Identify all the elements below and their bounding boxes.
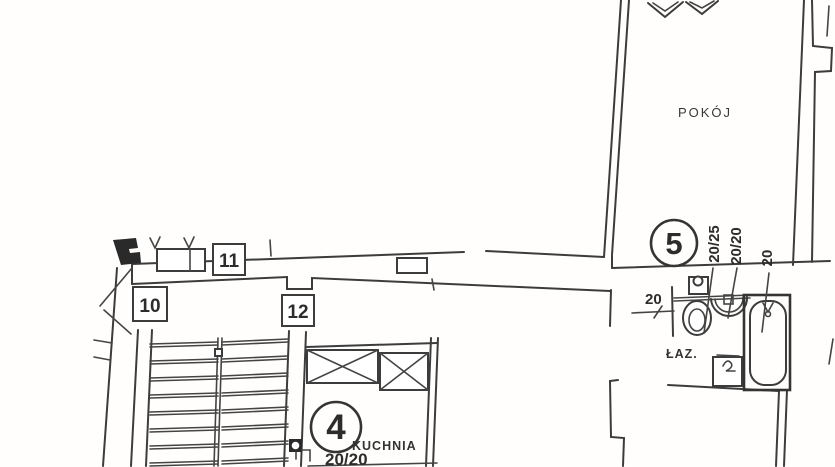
chimney-block [113, 238, 141, 265]
box-12-label: 12 [287, 302, 308, 323]
dim-bath-1: 20/25 [706, 225, 723, 263]
position-box-10: 10 [133, 287, 167, 321]
floor-plan-page: 10 11 12 5 4 POKÓJ ŁAZ. KUCHNIA 20/25 20… [0, 0, 835, 467]
circle-5-label: 5 [665, 226, 682, 261]
dim-kitchen: 20/20 [325, 450, 368, 467]
kitchen-counter-icon [307, 350, 428, 390]
toilet-icon [683, 277, 711, 336]
unit-circle-5: 5 [651, 220, 697, 266]
dim-bath-horizontal: 20 [645, 291, 662, 308]
box-10-label: 10 [139, 296, 160, 317]
dim-bath-3: 20 [759, 250, 776, 267]
radiator-icon [150, 237, 205, 271]
entrance-door-swing [94, 268, 132, 466]
box-11-label: 11 [219, 251, 240, 272]
bathtub-icon [744, 295, 790, 390]
position-box-12: 12 [282, 295, 314, 326]
gas-point-icon [289, 439, 310, 461]
floor-plan-drawing: 10 11 12 5 4 POKÓJ ŁAZ. KUCHNIA 20/25 20… [0, 0, 835, 467]
position-box-11: 11 [213, 244, 245, 275]
hall-wall [610, 290, 624, 466]
staircase [131, 330, 306, 466]
circle-4-label: 4 [326, 408, 346, 447]
washer-icon [713, 355, 742, 386]
room-label-lazienka: ŁAZ. [666, 347, 698, 361]
dim-bath-2: 20/20 [728, 227, 745, 265]
room-label-pokoj: POKÓJ [678, 105, 732, 120]
window-icon [648, 1, 718, 17]
